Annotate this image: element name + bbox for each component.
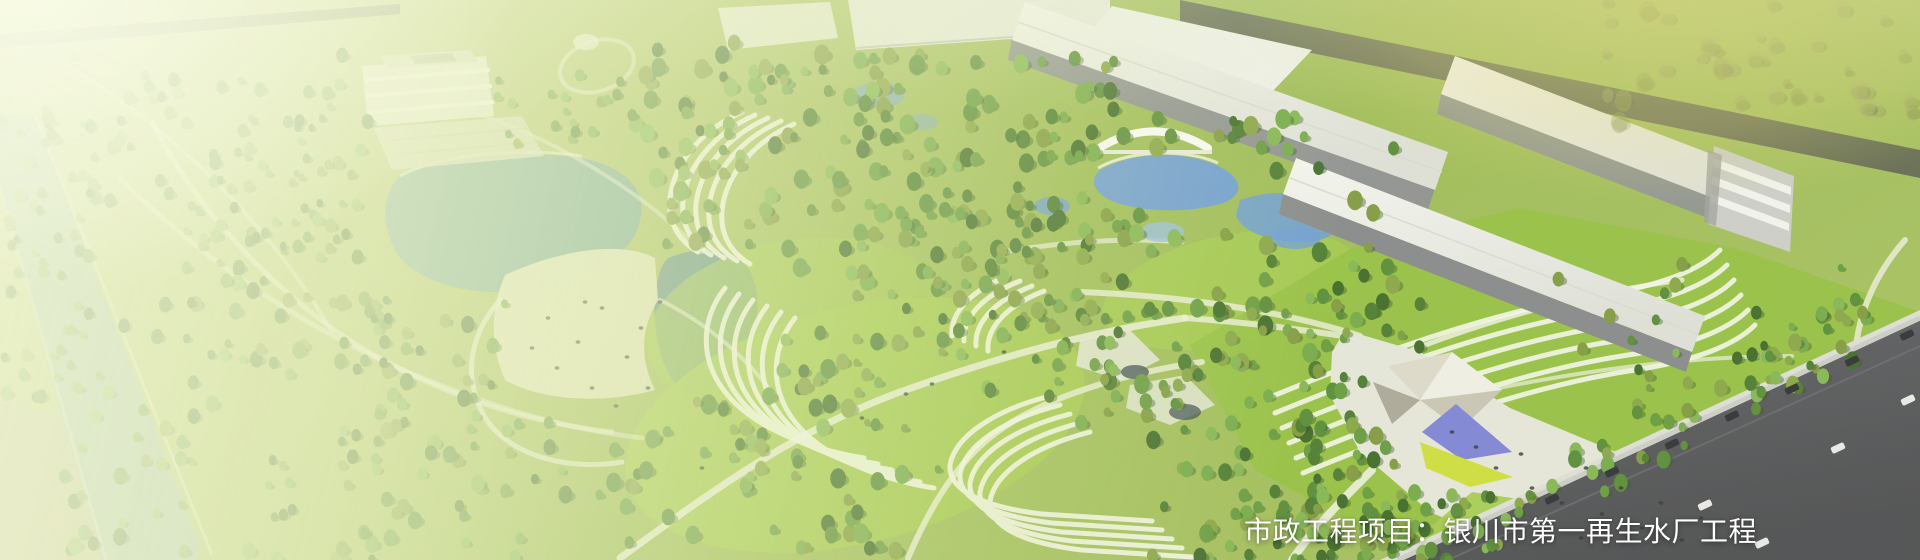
banner-caption: 市政工程项目：银川市第一再生水厂工程: [1244, 510, 1757, 550]
aerial-rendering: [0, 0, 1920, 560]
dome-greenhouse: [573, 34, 599, 50]
hero-banner: 市政工程项目：银川市第一再生水厂工程: [0, 0, 1920, 560]
lake-beach: [494, 249, 658, 399]
